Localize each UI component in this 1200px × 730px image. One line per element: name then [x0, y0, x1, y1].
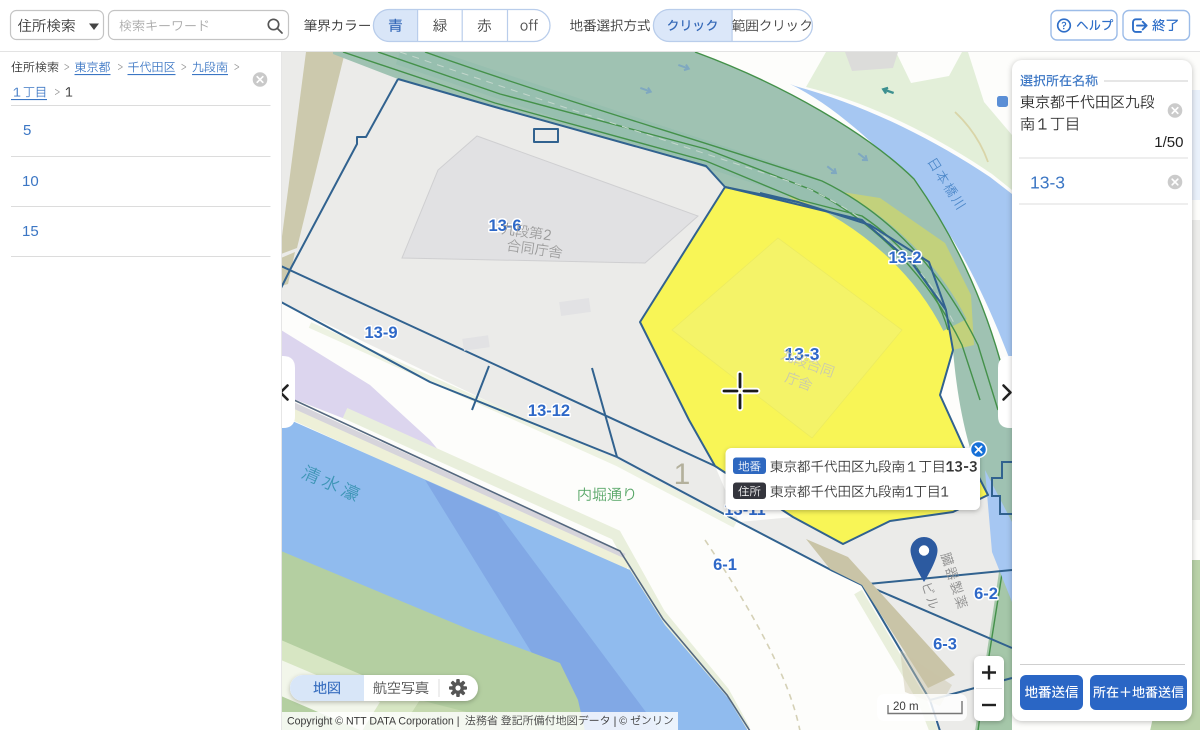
svg-text:6-1: 6-1 [713, 556, 737, 574]
svg-text:13-3: 13-3 [1030, 173, 1065, 193]
svg-text:15: 15 [22, 223, 39, 240]
svg-text:20 m: 20 m [893, 701, 919, 713]
svg-text:1: 1 [674, 458, 691, 491]
svg-text:| ©: | © [614, 716, 628, 728]
svg-text:13-12: 13-12 [528, 402, 570, 420]
svg-text:6-3: 6-3 [933, 636, 957, 654]
svg-text:13-2: 13-2 [888, 249, 921, 267]
svg-text:6-2: 6-2 [974, 585, 998, 603]
svg-text:13-9: 13-9 [364, 324, 397, 342]
svg-text:Copyright © NTT DATA Corporati: Copyright © NTT DATA Corporation | [287, 716, 459, 728]
svg-text:1/50: 1/50 [1154, 134, 1183, 151]
svg-text:10: 10 [22, 173, 39, 190]
svg-text:5: 5 [23, 122, 31, 139]
